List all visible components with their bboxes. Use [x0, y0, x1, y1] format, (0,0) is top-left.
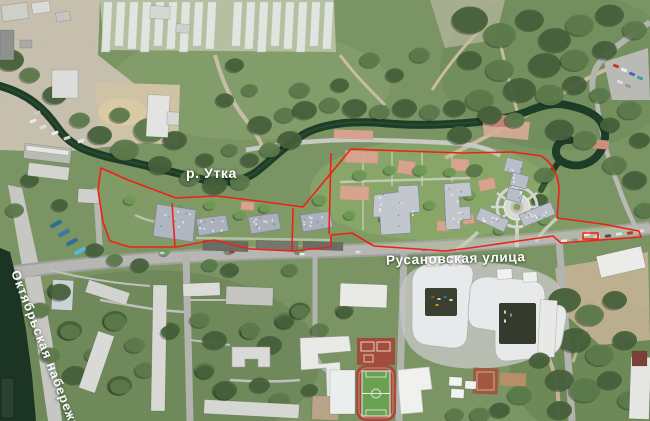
roof-vent [492, 220, 493, 221]
grain-dot [488, 182, 489, 183]
grain-dot [471, 92, 472, 93]
grain-dot [98, 98, 99, 99]
building [20, 40, 32, 48]
roof-vent [449, 188, 450, 189]
tree [30, 303, 50, 318]
grain-dot [141, 101, 142, 102]
roof-unit [177, 211, 179, 213]
grain-dot [21, 4, 22, 5]
grain-dot [8, 314, 9, 315]
grain-dot [173, 48, 174, 49]
building [538, 300, 558, 358]
grain-dot [224, 97, 225, 98]
grain-dot [346, 380, 347, 381]
tree [203, 331, 227, 349]
grain-dot [325, 43, 326, 44]
roof-vent [174, 220, 175, 221]
grain-dot [224, 120, 225, 121]
roof-unit [309, 216, 311, 218]
grain-dot [214, 251, 215, 252]
tree [250, 378, 270, 393]
tree [241, 325, 259, 339]
grain-dot [95, 182, 96, 183]
grain-dot [100, 379, 101, 380]
building [146, 94, 170, 137]
grain-dot [10, 353, 11, 354]
grain-dot [630, 397, 631, 398]
roof-vent [462, 213, 463, 214]
grain-dot [545, 246, 546, 247]
roof-vent [543, 217, 544, 218]
aerial-photo [0, 0, 650, 421]
roof-vent [528, 215, 529, 216]
grain-dot [197, 193, 198, 194]
vehicle [159, 252, 164, 255]
grain-dot [562, 209, 563, 210]
tree [490, 403, 510, 418]
grain-dot [480, 241, 481, 242]
grain-dot [566, 171, 567, 172]
grain-dot [534, 337, 535, 338]
roof-unit [182, 222, 184, 224]
grain-dot [528, 411, 529, 412]
vehicle [435, 304, 439, 306]
building [183, 282, 220, 296]
tree [618, 101, 642, 119]
grain-dot [240, 77, 241, 78]
roof-unit [483, 218, 485, 220]
grain-dot [510, 181, 511, 182]
tree [623, 171, 647, 189]
grain-dot [193, 352, 194, 353]
grain-dot [424, 226, 425, 227]
grain-dot [295, 291, 296, 292]
grain-dot [485, 10, 486, 11]
building [449, 377, 462, 387]
grain-dot [23, 408, 24, 409]
grain-dot [643, 322, 644, 323]
grain-dot [131, 299, 132, 300]
grain-dot [353, 136, 354, 137]
roof-unit [203, 228, 205, 230]
grain-dot [393, 351, 394, 352]
grain-dot [283, 71, 284, 72]
tree [613, 331, 637, 349]
grain-dot [581, 233, 582, 234]
grain-dot [249, 3, 250, 4]
grain-dot [327, 399, 328, 400]
tree [424, 201, 436, 210]
grain-dot [477, 189, 478, 190]
grain-dot [146, 226, 147, 227]
tree [293, 101, 317, 119]
vehicle [437, 298, 441, 300]
grain-dot [596, 86, 597, 87]
roof-unit [543, 215, 545, 217]
tree [504, 78, 536, 102]
tree [196, 153, 214, 167]
tree [386, 68, 404, 82]
tree [573, 131, 597, 149]
tree [539, 28, 571, 52]
tree [242, 84, 258, 96]
grain-dot [277, 290, 278, 291]
grain-dot [64, 215, 65, 216]
grain-dot [545, 350, 546, 351]
grain-dot [199, 36, 200, 37]
tree [448, 126, 472, 144]
grain-dot [183, 406, 184, 407]
building [497, 269, 513, 280]
grain-dot [481, 224, 482, 225]
grain-dot [444, 177, 445, 178]
tree [603, 291, 627, 309]
tree [110, 380, 130, 395]
grain-dot [51, 287, 52, 288]
grain-dot [88, 158, 89, 159]
grain-dot [523, 32, 524, 33]
courtyard-west [425, 288, 457, 316]
grain-dot [597, 125, 598, 126]
grain-dot [398, 381, 399, 382]
grain-dot [378, 54, 379, 55]
grain-dot [527, 15, 528, 16]
grain-dot [138, 174, 139, 175]
grain-dot [95, 110, 96, 111]
grain-dot [316, 412, 317, 413]
roof-unit [266, 221, 268, 223]
tree [70, 113, 90, 128]
grain-dot [124, 392, 125, 393]
grain-dot [480, 306, 481, 307]
grain-dot [409, 13, 410, 14]
vehicle [431, 296, 435, 298]
grain-dot [443, 102, 444, 103]
tree [535, 168, 555, 183]
grain-dot [405, 141, 406, 142]
grain-dot [360, 154, 361, 155]
grain-dot [62, 150, 63, 151]
grain-dot [515, 355, 516, 356]
salmon-court [340, 185, 369, 200]
grain-dot [152, 302, 153, 303]
tree [110, 108, 130, 123]
grain-dot [425, 208, 426, 209]
grain-dot [25, 340, 26, 341]
grain-dot [412, 335, 413, 336]
grain-dot [506, 313, 507, 314]
grain-dot [219, 132, 220, 133]
roof-unit [255, 223, 257, 225]
sand-court [500, 373, 526, 387]
roof-vent [398, 214, 399, 215]
grain-dot [306, 419, 307, 420]
roof-unit [529, 213, 531, 215]
grain-dot [477, 411, 478, 412]
tree [49, 284, 71, 301]
grain-dot [324, 12, 325, 13]
grain-dot [166, 298, 167, 299]
grain-dot [299, 115, 300, 116]
grain-dot [610, 73, 611, 74]
grain-dot [96, 271, 97, 272]
roof-unit [452, 194, 454, 196]
grain-dot [63, 379, 64, 380]
grain-dot [570, 59, 571, 60]
grain-dot [365, 251, 366, 252]
grain-dot [238, 176, 239, 177]
roof-vent [509, 168, 510, 169]
grain-dot [238, 263, 239, 264]
roof-unit [310, 222, 312, 224]
grain-dot [153, 335, 154, 336]
grain-dot [183, 330, 184, 331]
tree [320, 98, 340, 113]
grain-dot [496, 407, 497, 408]
grain-dot [454, 164, 455, 165]
grain-dot [540, 125, 541, 126]
grain-dot [332, 165, 333, 166]
grain-dot [273, 62, 274, 63]
grain-dot [393, 101, 394, 102]
tree [215, 385, 235, 400]
grain-dot [544, 245, 545, 246]
grain-dot [576, 248, 577, 249]
grain-dot [179, 358, 180, 359]
grain-dot [177, 400, 178, 401]
roof-vent [256, 227, 257, 228]
tree [344, 211, 356, 220]
tree [125, 338, 145, 353]
tree [343, 99, 367, 117]
grain-dot [446, 197, 447, 198]
building [226, 286, 274, 306]
tree [593, 41, 617, 59]
grain-dot [283, 331, 284, 332]
grain-dot [518, 399, 519, 400]
tree [467, 164, 483, 176]
grain-dot [395, 219, 396, 220]
grain-dot [492, 353, 493, 354]
grain-dot [212, 419, 213, 420]
grain-dot [354, 161, 355, 162]
building [55, 11, 70, 22]
grain-dot [570, 317, 571, 318]
vehicle [229, 251, 234, 254]
grain-dot [595, 63, 596, 64]
roof-unit [512, 170, 514, 172]
grain-dot [159, 379, 160, 380]
grain-dot [595, 367, 596, 368]
roof-unit [380, 204, 382, 206]
grain-dot [536, 419, 537, 420]
tree [204, 201, 216, 210]
grain-dot [220, 114, 221, 115]
tree [561, 50, 589, 71]
grain-dot [168, 307, 169, 308]
tree [596, 5, 624, 26]
vehicle [504, 319, 506, 323]
grain-dot [265, 227, 266, 228]
grain-dot [28, 93, 29, 94]
tree [566, 15, 594, 36]
grain-dot [159, 48, 160, 49]
grain-dot [123, 152, 124, 153]
building [52, 70, 78, 98]
barge [1, 378, 14, 418]
grain-dot [596, 221, 597, 222]
grain-dot [264, 226, 265, 227]
grain-dot [162, 338, 163, 339]
tree [313, 195, 327, 206]
grain-dot [281, 123, 282, 124]
grain-dot [610, 54, 611, 55]
tree [278, 131, 302, 149]
tree [148, 156, 172, 174]
roof-unit [311, 217, 313, 219]
greenhouse-field [100, 0, 336, 52]
grain-dot [154, 205, 155, 206]
grain-dot [341, 140, 342, 141]
tree [598, 371, 622, 389]
roof-unit [545, 212, 547, 214]
grain-dot [191, 412, 192, 413]
grain-dot [488, 364, 489, 365]
building [330, 370, 355, 414]
vehicle [510, 313, 512, 317]
roof-unit [379, 208, 381, 210]
grain-dot [106, 377, 107, 378]
grain-dot [568, 334, 569, 335]
grain-dot [240, 128, 241, 129]
roof-vent [160, 226, 161, 227]
grain-dot [576, 119, 577, 120]
roof-vent [524, 212, 525, 213]
grain-dot [161, 285, 162, 286]
grain-dot [389, 413, 390, 414]
grain-dot [175, 384, 176, 385]
grain-dot [43, 18, 44, 19]
salmon-court [241, 202, 254, 211]
roof-unit [458, 221, 460, 223]
grain-dot [439, 381, 440, 382]
grain-dot [640, 304, 641, 305]
roof-unit [513, 181, 515, 183]
roof-unit [221, 230, 223, 232]
grain-dot [322, 379, 323, 380]
grain-dot [27, 368, 28, 369]
grain-dot [17, 217, 18, 218]
tree [420, 105, 440, 120]
grain-dot [27, 390, 28, 391]
grain-dot [16, 124, 17, 125]
grain-dot [317, 59, 318, 60]
tree [52, 199, 68, 211]
roof-vent [520, 168, 521, 169]
grain-dot [202, 293, 203, 294]
grain-dot [626, 251, 627, 252]
tree [131, 258, 149, 272]
grain-dot [645, 228, 646, 229]
grain-dot [383, 44, 384, 45]
tree [6, 203, 24, 217]
grain-dot [638, 248, 639, 249]
roof-unit [531, 215, 533, 217]
roof-unit [212, 230, 214, 232]
grain-dot [409, 394, 410, 395]
grain-dot [472, 404, 473, 405]
grain-dot [353, 96, 354, 97]
roof-unit [526, 217, 528, 219]
grain-dot [231, 138, 232, 139]
tree [226, 58, 244, 72]
grain-dot [380, 55, 381, 56]
local-road [186, 254, 190, 421]
roof-unit [258, 227, 260, 229]
tree [40, 348, 60, 363]
grain-dot [511, 34, 512, 35]
grain-dot [536, 219, 537, 220]
grain-dot [174, 317, 175, 318]
grain-dot [94, 135, 95, 136]
tree [360, 53, 380, 68]
grain-dot [218, 103, 219, 104]
grain-dot [126, 361, 127, 362]
roof-unit [452, 218, 454, 220]
tree [410, 48, 430, 63]
grain-dot [542, 43, 543, 44]
riverbank-building [334, 129, 373, 139]
grain-dot [399, 14, 400, 15]
roof-unit [165, 214, 167, 216]
grain-dot [298, 179, 299, 180]
grain-dot [513, 333, 514, 334]
building [451, 389, 464, 399]
grain-dot [84, 99, 85, 100]
grain-dot [375, 125, 376, 126]
tree [221, 263, 239, 277]
tree [576, 305, 604, 326]
tree [291, 305, 309, 319]
tree [529, 53, 561, 77]
grain-dot [450, 63, 451, 64]
tree [222, 144, 238, 156]
grain-dot [127, 184, 128, 185]
grain-dot [81, 129, 82, 130]
tree [203, 176, 227, 194]
tree [60, 325, 80, 340]
grain-dot [238, 171, 239, 172]
roof-unit [303, 221, 305, 223]
roof-vent [460, 198, 461, 199]
grain-dot [9, 36, 10, 37]
grain-dot [182, 337, 183, 338]
grain-dot [207, 317, 208, 318]
grain-dot [640, 260, 641, 261]
roof-unit [513, 177, 515, 179]
grain-dot [347, 167, 348, 168]
grain-dot [230, 137, 231, 138]
grain-dot [428, 179, 429, 180]
roof-vent [168, 216, 169, 217]
tree [353, 170, 367, 181]
grain-dot [441, 25, 442, 26]
grain-dot [260, 329, 261, 330]
grain-dot [395, 387, 396, 388]
tree [623, 21, 647, 39]
grain-dot [369, 383, 370, 384]
grain-dot [147, 322, 148, 323]
